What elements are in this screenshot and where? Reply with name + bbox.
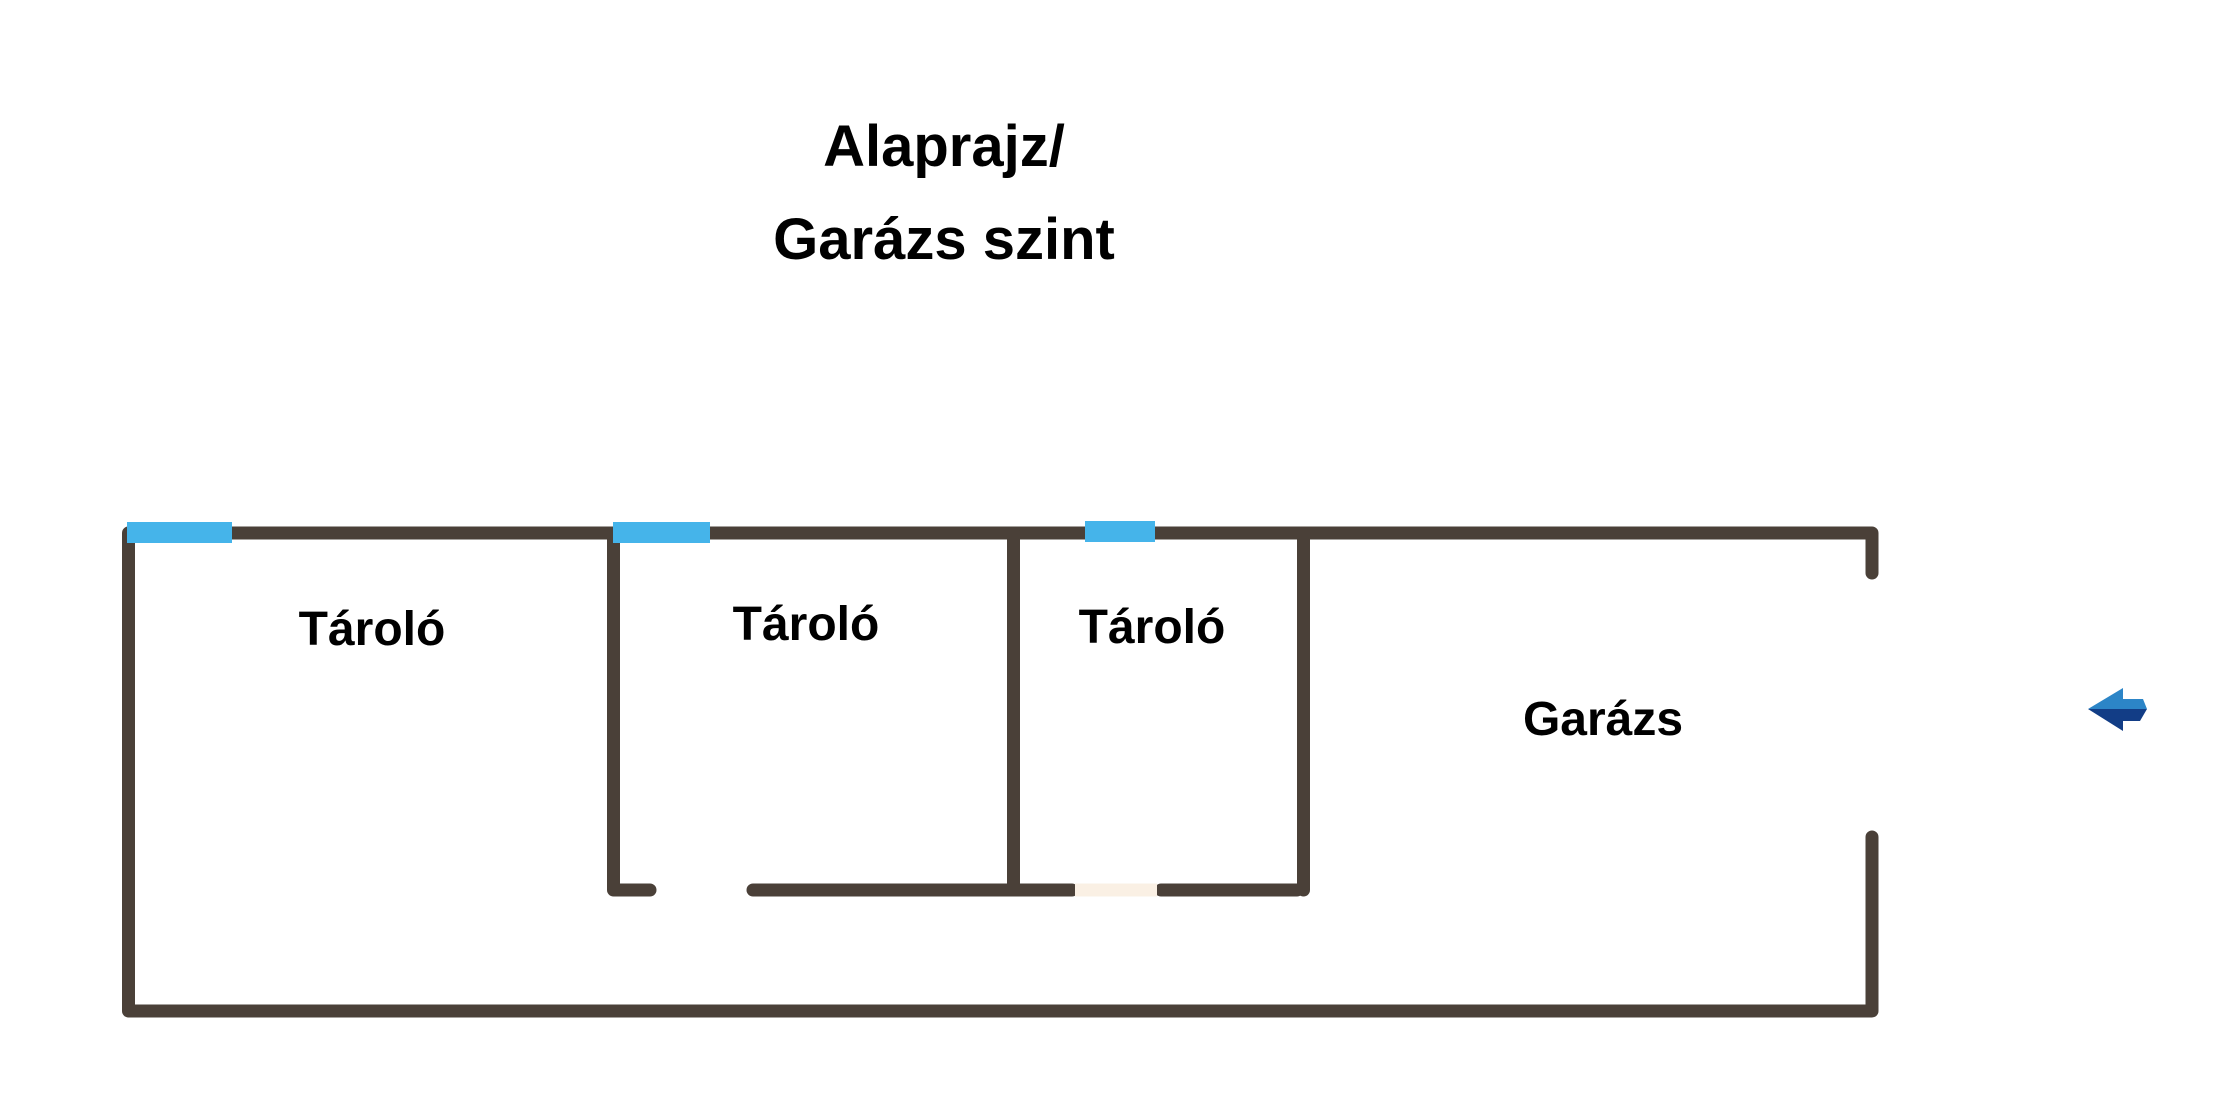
divider-wall-storage1-storage2 [614,533,651,890]
room-label-garage: Garázs [1523,696,1683,744]
floor-plan-drawing [0,0,2220,1100]
window-marker-storage1 [127,522,232,543]
room-label-storage-3: Tároló [1079,604,1226,652]
floor-plan-page: Alaprajz/ Garázs szint Tároló Tároló Tár… [0,0,2220,1100]
window-marker-storage2 [613,522,710,543]
room-label-storage-1: Tároló [299,606,446,654]
entrance-arrow-icon [2088,688,2147,731]
room-label-storage-2: Tároló [733,601,880,649]
entrance-arrow-lower [2088,709,2147,731]
window-marker-storage3 [1085,521,1155,542]
entrance-arrow-upper [2088,688,2147,709]
